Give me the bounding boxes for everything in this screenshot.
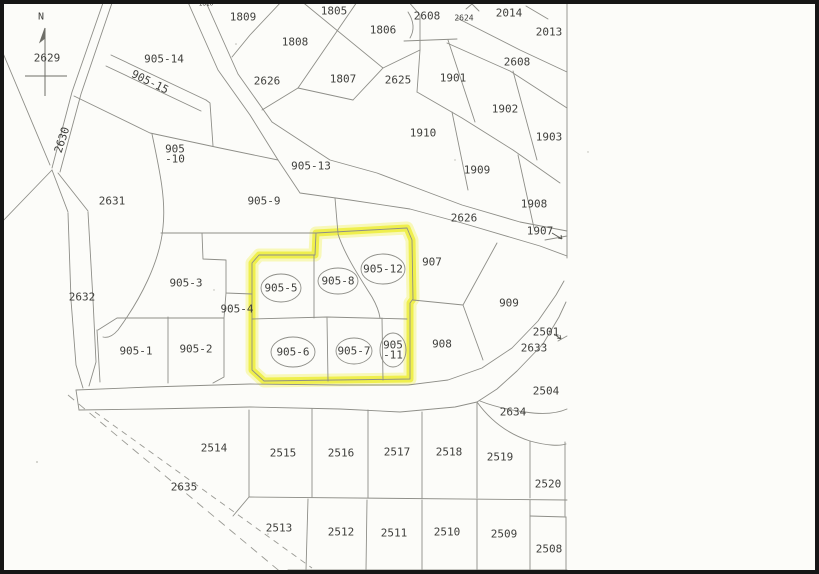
parcel-label-1805: 1805 (321, 5, 348, 18)
parcel-label-2510: 2510 (434, 526, 461, 539)
parcel-label-908: 908 (432, 338, 452, 351)
parcel-label-2513: 2513 (266, 522, 293, 535)
parcel-label-2504: 2504 (533, 385, 560, 398)
parcel-label-905-11: 905-11 (383, 338, 403, 361)
parcel-label-2014: 2014 (496, 7, 523, 20)
parcel-label-905-14: 905-14 (144, 53, 184, 66)
parcel-label-2629: 2629 (34, 52, 61, 65)
parcel-label-2608: 2608 (504, 56, 531, 69)
parcel-label-2501: 2501 (533, 326, 560, 339)
parcel-label-2626: 2626 (451, 212, 478, 225)
parcel-label-2635: 2635 (171, 481, 198, 494)
parcel-label-2511: 2511 (381, 527, 408, 540)
parcel-label-2608: 2608 (414, 10, 441, 23)
parcel-label-1901: 1901 (440, 72, 467, 85)
parcel-label-907: 907 (422, 256, 442, 269)
map-canvas: N2629905-14905-1526301810180918051808180… (0, 0, 819, 574)
parcel-label-2508: 2508 (536, 543, 563, 556)
cadastral-map: N2629905-14905-1526301810180918051808180… (0, 0, 819, 574)
parcel-label-N: N (38, 12, 44, 23)
parcel-label-2518: 2518 (436, 446, 463, 459)
parcel-label-2512: 2512 (328, 526, 355, 539)
parcel-label-2632: 2632 (69, 291, 96, 304)
parcel-label-1907: 1907 (527, 225, 554, 238)
parcel-label-1903: 1903 (536, 131, 563, 144)
parcel-label-1809: 1809 (230, 11, 257, 24)
parcel-label-1909: 1909 (464, 164, 491, 177)
parcel-label-2013: 2013 (536, 26, 563, 39)
parcel-label-2509: 2509 (491, 528, 518, 541)
parcel-label-2634: 2634 (500, 406, 527, 419)
parcel-label-2520: 2520 (535, 478, 562, 491)
parcel-label-2631: 2631 (99, 195, 126, 208)
parcel-label-1908: 1908 (521, 198, 548, 211)
parcel-label-2515: 2515 (270, 447, 297, 460)
parcel-label-2625: 2625 (385, 74, 412, 87)
parcel-label-905-9: 905-9 (247, 195, 280, 208)
parcel-label-905-3: 905-3 (169, 277, 202, 290)
parcel-label-905-8: 905-8 (321, 275, 354, 288)
parcel-label-2516: 2516 (328, 447, 355, 460)
parcel-label-2514: 2514 (201, 442, 228, 455)
parcel-label-2633: 2633 (521, 342, 548, 355)
parcel-label-2624: 2624 (454, 14, 473, 23)
parcel-label-905-7: 905-7 (337, 345, 370, 358)
parcel-label-2626: 2626 (254, 75, 281, 88)
parcel-label-1902: 1902 (492, 103, 519, 116)
parcel-label-1808: 1808 (282, 36, 309, 49)
parcel-label-905-13: 905-13 (291, 160, 331, 173)
parcel-label-2517: 2517 (384, 446, 411, 459)
parcel-label-905-2: 905-2 (179, 343, 212, 356)
parcel-label-905-5: 905-5 (264, 282, 297, 295)
parcel-label-905-10: 905-10 (165, 142, 185, 165)
parcel-label-1806: 1806 (370, 24, 397, 37)
parcel-label-905-4: 905-4 (220, 303, 253, 316)
parcel-label-2519: 2519 (487, 451, 514, 464)
parcel-label-909: 909 (499, 297, 519, 310)
parcel-label-905-6: 905-6 (276, 346, 309, 359)
parcel-label-905-12: 905-12 (363, 263, 403, 276)
parcel-label-1807: 1807 (330, 73, 357, 86)
parcel-label-905-1: 905-1 (119, 345, 152, 358)
parcel-label-1910: 1910 (410, 127, 437, 140)
